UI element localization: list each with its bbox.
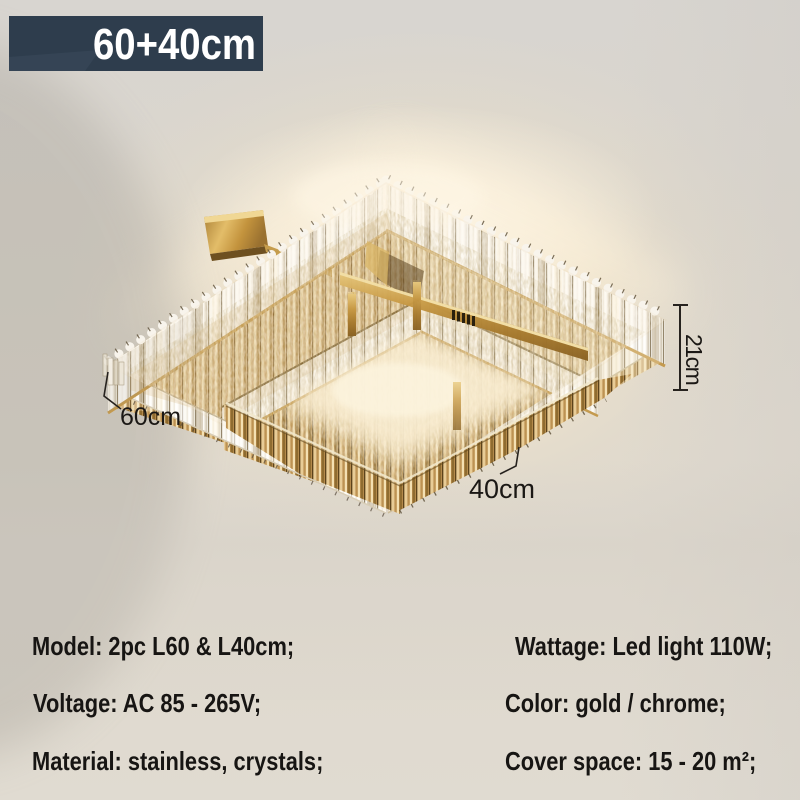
svg-text:40cm: 40cm	[469, 474, 535, 504]
svg-text:60cm: 60cm	[120, 403, 181, 431]
svg-text:21cm: 21cm	[681, 334, 707, 385]
svg-text:60+40cm: 60+40cm	[93, 20, 256, 69]
